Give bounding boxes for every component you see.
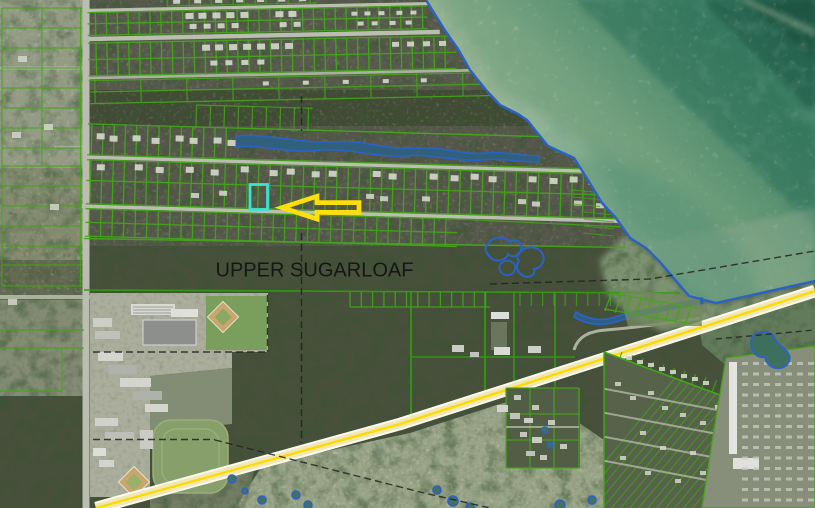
- svg-text:UPPER SUGARLOAF: UPPER SUGARLOAF: [216, 259, 414, 282]
